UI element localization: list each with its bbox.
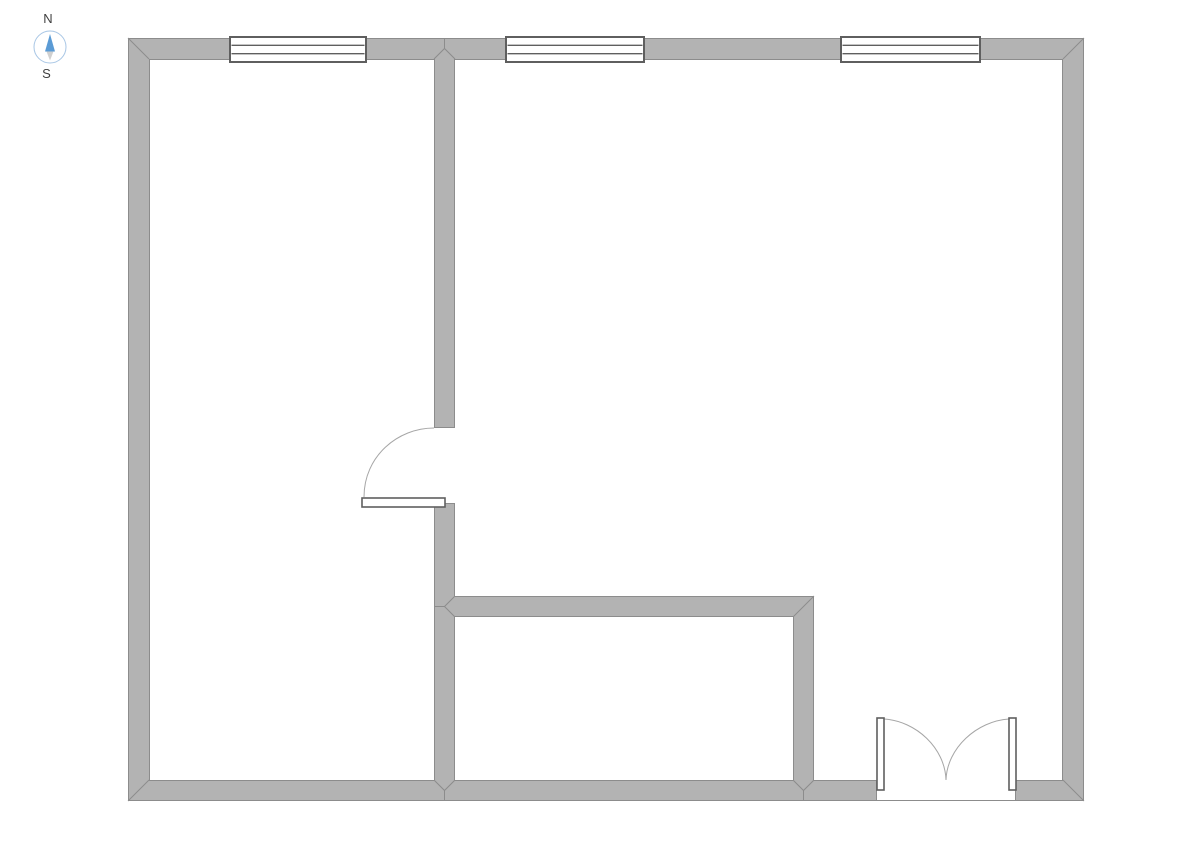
- entry-double-door-right-leaf: [1009, 718, 1016, 790]
- floor-plan-page: N S: [0, 0, 1191, 842]
- wall-exterior-south-west-of-entry[interactable]: [128, 780, 876, 801]
- wall-interior-vertical-upper[interactable]: [434, 59, 455, 428]
- compass: N S: [34, 11, 66, 81]
- entry-double-door-right[interactable]: [946, 718, 1016, 790]
- compass-south-label: S: [42, 66, 51, 81]
- wall-interior-vertical-lower[interactable]: [434, 503, 455, 780]
- compass-north-label: N: [43, 11, 52, 26]
- interior-door-leaf: [362, 498, 445, 507]
- entry-double-door-left[interactable]: [877, 718, 946, 790]
- wall-interior-vertical-right[interactable]: [793, 596, 814, 780]
- window-3-frame: [841, 37, 980, 62]
- window-2[interactable]: [506, 37, 644, 62]
- wall-interior-horizontal[interactable]: [434, 596, 814, 617]
- wall-joints-layer: [128, 38, 1084, 801]
- walls-layer: [128, 38, 1084, 801]
- windows-layer: [230, 37, 980, 62]
- window-1-frame: [230, 37, 366, 62]
- wall-edges-layer: [128, 38, 1084, 801]
- window-3[interactable]: [841, 37, 980, 62]
- entry-double-door-left-leaf: [877, 718, 884, 790]
- floor-plan-canvas: N S: [0, 0, 1191, 842]
- wall-exterior-east[interactable]: [1063, 38, 1084, 801]
- wall-exterior-west[interactable]: [128, 38, 149, 801]
- window-1[interactable]: [230, 37, 366, 62]
- entry-double-door-left-swing-arc: [884, 719, 946, 780]
- window-2-frame: [506, 37, 644, 62]
- interior-door-swing-arc: [364, 428, 434, 497]
- entry-double-door-right-swing-arc: [946, 719, 1009, 780]
- interior-door[interactable]: [362, 428, 445, 507]
